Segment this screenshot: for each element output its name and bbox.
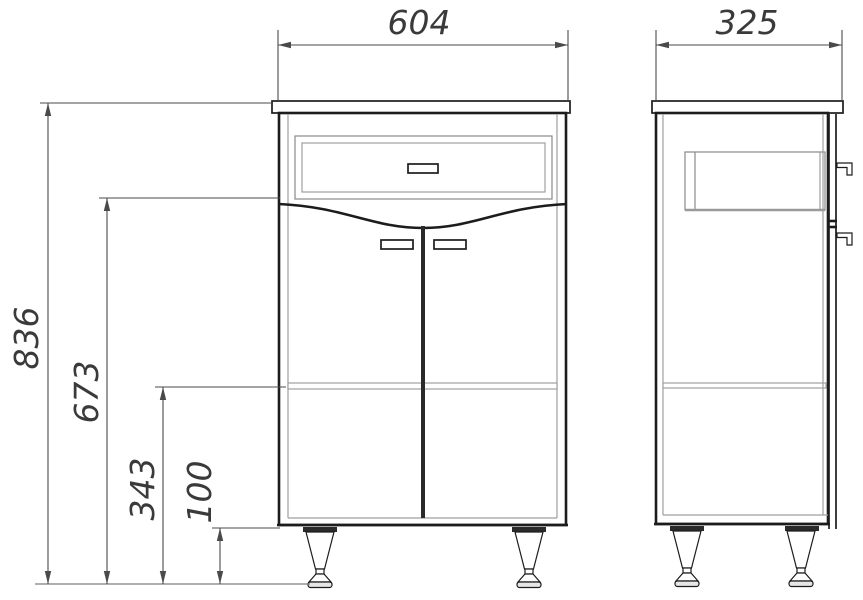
arrow-down-icon xyxy=(45,571,51,584)
side-front-leg xyxy=(787,531,815,587)
arrow-left-icon xyxy=(656,42,669,48)
side-front-leg-plate xyxy=(785,526,819,531)
front-left-leg xyxy=(306,532,334,588)
front-right-leg xyxy=(515,532,543,588)
cabinet-dimension-drawing: 604 325 836 673 xyxy=(0,0,863,600)
side-door-handle-profile xyxy=(837,233,852,245)
side-cabinet-body xyxy=(656,113,828,524)
doors-top-height-label: 673 xyxy=(67,361,106,424)
side-view xyxy=(652,101,852,587)
dimension-width: 604 xyxy=(278,3,568,100)
shelf-height-label: 343 xyxy=(123,458,162,521)
depth-label: 325 xyxy=(716,3,779,42)
arrow-right-icon xyxy=(555,42,568,48)
right-door-handle xyxy=(434,240,466,249)
dimension-legs-height: 100 xyxy=(180,461,280,585)
side-drawer-handle-profile xyxy=(837,163,852,175)
arrow-up-icon xyxy=(217,528,223,541)
width-label: 604 xyxy=(388,3,451,42)
front-view xyxy=(272,101,570,588)
arrow-left-icon xyxy=(278,42,291,48)
legs-height-label: 100 xyxy=(180,461,219,524)
front-left-leg-plate xyxy=(303,527,337,532)
dimension-depth: 325 xyxy=(656,3,842,100)
arrow-right-icon xyxy=(829,42,842,48)
drawer-front xyxy=(295,136,552,199)
dimension-doors-top-height: 673 xyxy=(67,198,280,584)
arrow-up-icon xyxy=(45,103,51,116)
total-height-label: 836 xyxy=(7,307,46,370)
arrow-down-icon xyxy=(104,571,110,584)
arrow-down-icon xyxy=(160,571,166,584)
side-countertop xyxy=(652,101,843,113)
side-rear-leg xyxy=(673,531,701,587)
left-door-handle xyxy=(381,240,413,249)
door-divider xyxy=(421,226,425,518)
arrow-up-icon xyxy=(104,198,110,211)
side-shelf-line xyxy=(663,383,826,388)
technical-drawing-canvas: 604 325 836 673 xyxy=(0,0,863,600)
front-right-leg-plate xyxy=(512,527,546,532)
drawer-handle xyxy=(408,164,438,173)
front-countertop xyxy=(272,101,570,113)
arrow-up-icon xyxy=(160,387,166,400)
arrow-down-icon xyxy=(217,571,223,584)
side-rear-leg-plate xyxy=(670,526,704,531)
